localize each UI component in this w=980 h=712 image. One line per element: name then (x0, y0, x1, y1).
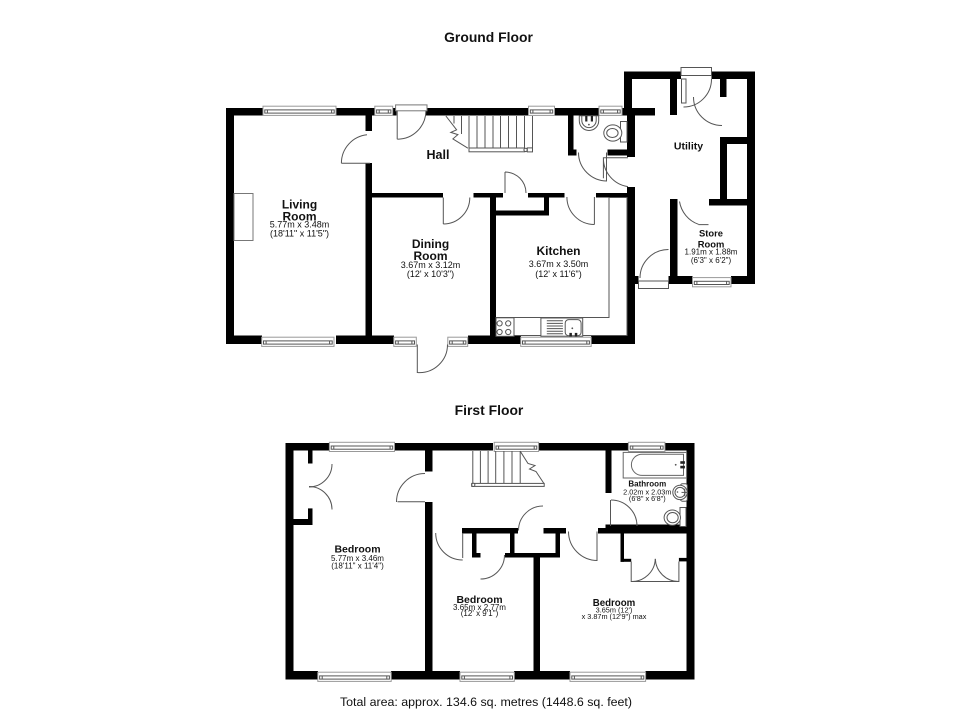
svg-text:Total area: approx. 134.6 sq.: Total area: approx. 134.6 sq. metres (14… (340, 695, 632, 709)
svg-text:Kitchen: Kitchen (536, 244, 580, 258)
svg-text:(18'11" x 11'4"): (18'11" x 11'4") (331, 562, 384, 571)
svg-text:Ground Floor: Ground Floor (444, 29, 533, 45)
svg-text:Utility: Utility (674, 140, 703, 152)
svg-text:(6'8" x 6'8"): (6'8" x 6'8") (629, 494, 666, 503)
svg-text:First Floor: First Floor (455, 402, 524, 418)
svg-text:Hall: Hall (427, 148, 450, 162)
svg-text:(12' x 10'3"): (12' x 10'3") (407, 269, 454, 279)
svg-text:x 3.87m (12'9") max: x 3.87m (12'9") max (582, 612, 647, 621)
svg-text:(6'3" x 6'2"): (6'3" x 6'2") (691, 256, 732, 265)
svg-text:(18'11" x 11'5"): (18'11" x 11'5") (270, 229, 329, 239)
svg-text:(12' x 9'1"): (12' x 9'1") (461, 609, 499, 618)
svg-text:(12' x 11'6"): (12' x 11'6") (535, 269, 582, 279)
svg-text:3.67m x 3.50m: 3.67m x 3.50m (529, 259, 589, 269)
svg-text:Store: Store (699, 227, 723, 238)
